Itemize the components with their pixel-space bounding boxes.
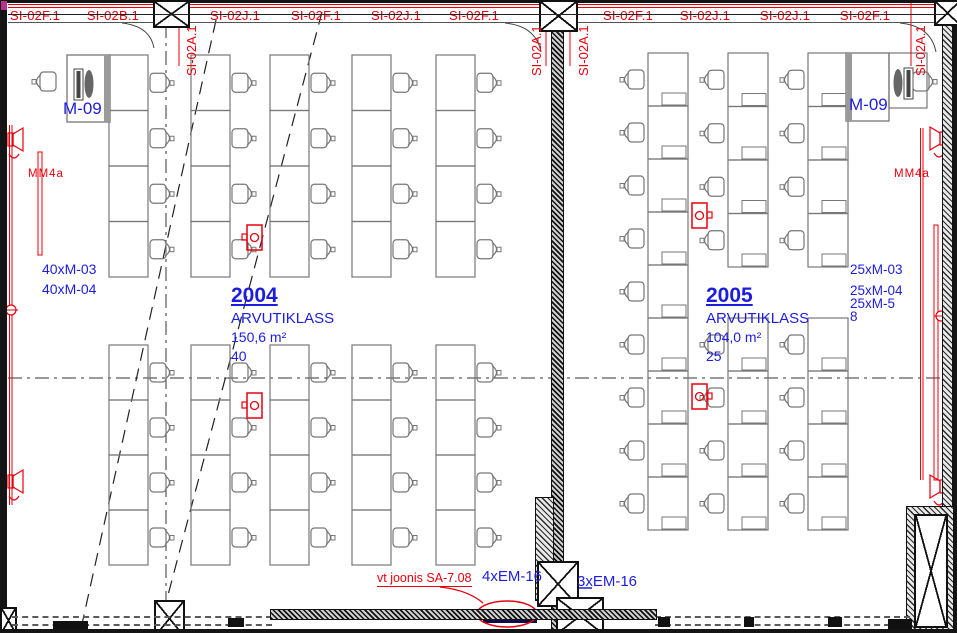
desk-computer (662, 464, 686, 476)
top-wall-line (8, 14, 948, 15)
wall-tag-vertical: SI-02A.1 (184, 25, 199, 76)
desk-computer (822, 201, 846, 213)
chair-icon (628, 494, 644, 513)
desk (109, 510, 148, 565)
desk-computer (822, 464, 846, 476)
chair-stub (497, 426, 501, 431)
chair-stub (620, 396, 624, 401)
equipment-list-2005: 25xM-0325xM-0425xM-58 (850, 263, 903, 323)
desk-computer (822, 147, 846, 159)
desk (648, 106, 688, 159)
chair-stub (331, 136, 335, 141)
desk (808, 318, 848, 371)
desk-computer (662, 146, 686, 158)
bottom-glazing-dash-right-2 (655, 624, 910, 626)
desk (648, 212, 688, 265)
desk (436, 166, 475, 222)
equipment-item: 25xM-5 (850, 297, 903, 310)
chair-stub (780, 78, 784, 83)
desk (808, 214, 848, 268)
chair-stub (780, 502, 784, 507)
chair-icon (628, 70, 644, 89)
speaker-icon (13, 128, 23, 151)
chair-stub (331, 536, 335, 541)
chair-stub (497, 536, 501, 541)
chair-icon (708, 177, 724, 196)
outlet-box (247, 393, 262, 418)
red-note-leader (440, 587, 483, 603)
door-swing-arc (122, 23, 154, 48)
chair-icon (232, 528, 248, 547)
chair-icon (311, 473, 327, 492)
chair-icon (232, 73, 248, 92)
equipment-item: 40xM-03 (42, 259, 96, 279)
chair-icon (40, 72, 56, 91)
room-number: 2004 (231, 284, 334, 308)
chair-stub (32, 80, 36, 85)
wall-tag: SI-02J.1 (364, 8, 428, 23)
desk (109, 400, 148, 455)
chair-stub (170, 481, 174, 486)
chair-stub (497, 192, 501, 197)
equipment-list-2004: 40xM-0340xM-04 (42, 259, 96, 299)
chair-icon (477, 418, 493, 437)
desk (270, 111, 309, 167)
chair-icon (393, 418, 409, 437)
desk-computer (742, 254, 766, 266)
chair-icon (708, 494, 724, 513)
desk (436, 510, 475, 565)
chair-icon (311, 528, 327, 547)
chair-stub (331, 192, 335, 197)
monitor-icon (907, 70, 911, 97)
mullion (658, 617, 670, 627)
speaker-icon (9, 154, 19, 158)
desk (648, 53, 688, 106)
wall-tag-vertical: SI-02A.1 (576, 25, 591, 76)
chair-stub (700, 502, 704, 507)
speaker-icon (13, 470, 23, 493)
chair-icon (708, 441, 724, 460)
chair-stub (780, 238, 784, 243)
room-2004-block: 2004 ARVUTIKLASS 150,6 m² 40 (231, 284, 334, 364)
desk-computer (742, 201, 766, 213)
chair-stub (331, 371, 335, 376)
chair-icon (788, 388, 804, 407)
chair-stub (497, 371, 501, 376)
desk (808, 107, 848, 161)
chair-icon (477, 129, 493, 148)
chair-icon (628, 229, 644, 248)
chair-icon (788, 177, 804, 196)
wall-tag: SI-02J.1 (673, 8, 737, 23)
outlet-circle (251, 234, 259, 242)
wall-label-mm4a-right: MM4a (894, 168, 930, 180)
desk (109, 166, 148, 222)
desk (436, 455, 475, 510)
chair-stub (497, 247, 501, 252)
desk (352, 400, 391, 455)
chair-stub (620, 131, 624, 136)
equipment-item: 8 (850, 310, 903, 323)
desk (109, 55, 148, 111)
desk-computer (822, 358, 846, 370)
desk-computer (662, 517, 686, 529)
equipment-item: 40xM-04 (42, 279, 96, 299)
desk (808, 477, 848, 530)
speaker-icon (9, 496, 19, 500)
desk (728, 371, 768, 424)
desk (728, 107, 768, 161)
wall-tag: SI-02J.1 (753, 8, 817, 23)
desk (728, 214, 768, 268)
chair-stub (700, 78, 704, 83)
room-area: 104,0 m² (706, 329, 809, 345)
room-2005-block: 2005 ARVUTIKLASS 104,0 m² 25 (706, 284, 809, 364)
chair-icon (150, 528, 166, 547)
wall-tag: SI-02B.1 (81, 8, 145, 23)
desk (808, 371, 848, 424)
desk (648, 477, 688, 530)
desk (270, 166, 309, 222)
outlet-circle (251, 402, 259, 410)
chair-icon (788, 124, 804, 143)
room-seats: 25 (706, 348, 809, 364)
chair-stub (331, 426, 335, 431)
desk-computer (742, 464, 766, 476)
chair-stub (331, 481, 335, 486)
chair-icon (311, 129, 327, 148)
chair-icon (311, 184, 327, 203)
desk-computer (662, 93, 686, 105)
chair-stub (331, 81, 335, 86)
chair-stub (413, 536, 417, 541)
chair-stub (780, 185, 784, 190)
desk (436, 400, 475, 455)
chair-stub (933, 80, 937, 85)
blue-note-4xem16: 4xEM-16 (482, 568, 542, 585)
bottom-wall (0, 629, 957, 633)
chair-stub (620, 290, 624, 295)
speaker-icon (930, 127, 940, 150)
desk (191, 400, 230, 455)
chair-stub (497, 136, 501, 141)
desk-computer (742, 517, 766, 529)
desk (728, 424, 768, 477)
equipment-item: 25xM-03 (850, 263, 903, 276)
chair-stub (413, 481, 417, 486)
desk (648, 318, 688, 371)
chair-icon (150, 473, 166, 492)
chair-icon (628, 388, 644, 407)
desk (191, 455, 230, 510)
top-red-line-1 (8, 4, 948, 5)
desk (728, 477, 768, 530)
desk (352, 166, 391, 222)
chair-icon (150, 418, 166, 437)
desk (808, 424, 848, 477)
outlet-circle (696, 212, 704, 220)
chair-icon (708, 70, 724, 89)
desk (728, 53, 768, 107)
chair-stub (170, 81, 174, 86)
teacher-desk-edge (104, 55, 110, 122)
plan-geometry (0, 0, 957, 633)
chair-stub (170, 426, 174, 431)
chair-stub (620, 343, 624, 348)
desk-computer (662, 305, 686, 317)
chair-stub (413, 81, 417, 86)
chair-icon (477, 184, 493, 203)
chair-icon (311, 363, 327, 382)
chair-icon (311, 73, 327, 92)
chair-stub (413, 426, 417, 431)
monitor-icon (85, 70, 94, 98)
desk (191, 222, 230, 278)
room-area: 150,6 m² (231, 329, 334, 345)
chair-stub (780, 131, 784, 136)
desk-computer (822, 94, 846, 106)
chair-icon (628, 123, 644, 142)
chair-stub (413, 247, 417, 252)
desk-computer (742, 147, 766, 159)
desk (270, 510, 309, 565)
chair-icon (393, 184, 409, 203)
chair-icon (628, 441, 644, 460)
chair-stub (700, 185, 704, 190)
wall-tag: SI-02F.1 (442, 8, 506, 23)
wall-tag: SI-02J.1 (203, 8, 267, 23)
desk (270, 455, 309, 510)
chair-icon (232, 240, 248, 259)
chair-icon (232, 184, 248, 203)
desk-computer (822, 254, 846, 266)
chair-icon (393, 363, 409, 382)
chair-stub (780, 449, 784, 454)
chair-stub (413, 192, 417, 197)
desk (270, 222, 309, 278)
mullion (744, 617, 754, 627)
desk (191, 111, 230, 167)
chair-icon (232, 129, 248, 148)
chair-stub (497, 81, 501, 86)
desk (191, 510, 230, 565)
blue-note-3xem16: 3xEM-16 (577, 573, 637, 590)
chair-icon (708, 231, 724, 250)
mullion (828, 617, 842, 627)
chair-icon (232, 363, 248, 382)
desk (191, 166, 230, 222)
red-note: vt joonis SA-7.08 (377, 571, 472, 587)
chair-icon (477, 363, 493, 382)
chair-stub (413, 136, 417, 141)
chair-stub (252, 136, 256, 141)
chair-stub (620, 78, 624, 83)
chair-icon (393, 473, 409, 492)
teacher-station-label-2004: M-09 (63, 99, 102, 119)
mullion (53, 621, 88, 630)
chair-stub (170, 247, 174, 252)
chair-stub (252, 481, 256, 486)
wall-tag: SI-02F.1 (833, 8, 897, 23)
chair-icon (311, 240, 327, 259)
desk (648, 159, 688, 212)
desk (808, 53, 848, 107)
chair-stub (331, 247, 335, 252)
chair-stub (620, 502, 624, 507)
desk-computer (662, 411, 686, 423)
chair-icon (150, 363, 166, 382)
chair-icon (788, 231, 804, 250)
teacher-station-label-2005: M-09 (849, 95, 888, 115)
desk (352, 455, 391, 510)
chair-stub (700, 449, 704, 454)
chair-stub (252, 426, 256, 431)
chair-icon (393, 528, 409, 547)
outlet-box (692, 203, 707, 228)
chair-stub (700, 343, 704, 348)
desk-computer (742, 411, 766, 423)
wall-tag-vertical: SI-02A.1 (913, 25, 928, 76)
left-wall (0, 0, 7, 633)
chair-icon (788, 441, 804, 460)
desk (436, 345, 475, 400)
chair-stub (620, 449, 624, 454)
desk (436, 222, 475, 278)
chair-icon (150, 184, 166, 203)
bottom-sill-hatch (270, 609, 657, 620)
desk (352, 55, 391, 111)
desk-computer (742, 94, 766, 106)
desk (436, 55, 475, 111)
desk (191, 345, 230, 400)
desk (352, 345, 391, 400)
wall-tag-vertical: SI-02A.1 (529, 25, 544, 76)
conduit-right-branch (934, 225, 938, 480)
chair-stub (700, 238, 704, 243)
floor-plan: SI-02F.1SI-02B.1SI-02J.1SI-02F.1SI-02J.1… (0, 0, 957, 633)
chair-stub (252, 81, 256, 86)
desk (808, 160, 848, 214)
desk-computer (662, 199, 686, 211)
chair-icon (393, 129, 409, 148)
room-type: ARVUTIKLASS (231, 310, 334, 327)
wall-tag: SI-02F.1 (596, 8, 660, 23)
chair-icon (150, 129, 166, 148)
desk (648, 371, 688, 424)
desk (109, 111, 148, 167)
chair-stub (170, 536, 174, 541)
chair-stub (252, 192, 256, 197)
bottom-glazing-dash-right-1 (655, 616, 910, 618)
chair-icon (232, 418, 248, 437)
chair-icon (788, 494, 804, 513)
room-number: 2005 (706, 284, 809, 308)
chair-stub (170, 136, 174, 141)
desk-computer (822, 411, 846, 423)
chair-icon (477, 473, 493, 492)
desk-computer (662, 358, 686, 370)
desk (352, 222, 391, 278)
chair-stub (780, 396, 784, 401)
chair-stub (620, 237, 624, 242)
wall-tag: SI-02F.1 (284, 8, 348, 23)
chair-icon (232, 473, 248, 492)
chair-icon (628, 176, 644, 195)
shaft (914, 514, 948, 628)
desk (352, 111, 391, 167)
chair-icon (393, 73, 409, 92)
chair-stub (252, 536, 256, 541)
chair-stub (170, 371, 174, 376)
desk (648, 424, 688, 477)
chair-stub (252, 371, 256, 376)
chair-stub (700, 131, 704, 136)
desk (352, 510, 391, 565)
desk (270, 400, 309, 455)
column-top-right (934, 0, 957, 26)
chair-icon (150, 73, 166, 92)
desk (109, 222, 148, 278)
chair-icon (477, 73, 493, 92)
desk (109, 455, 148, 510)
top-wall (0, 0, 957, 3)
chair-icon (628, 282, 644, 301)
chair-icon (477, 240, 493, 259)
monitor-icon (77, 71, 81, 98)
chair-icon (628, 335, 644, 354)
mullion (888, 619, 912, 630)
chair-icon (393, 240, 409, 259)
chair-icon (708, 388, 724, 407)
chair-icon (788, 70, 804, 89)
desk (728, 160, 768, 214)
monitor-icon (894, 69, 903, 97)
desk (436, 111, 475, 167)
room-seats: 40 (231, 348, 334, 364)
wall-label-mm4a-left: MM4a (28, 168, 64, 180)
wall-tag: SI-02F.1 (3, 8, 67, 23)
chair-stub (497, 481, 501, 486)
chair-icon (477, 528, 493, 547)
room-type: ARVUTIKLASS (706, 310, 809, 327)
chair-stub (620, 184, 624, 189)
desk-computer (822, 517, 846, 529)
chair-stub (170, 192, 174, 197)
desk-computer (662, 252, 686, 264)
column-top-center (539, 0, 578, 32)
chair-icon (708, 124, 724, 143)
desk (648, 265, 688, 318)
mullion (228, 618, 244, 627)
chair-icon (311, 418, 327, 437)
chair-stub (413, 371, 417, 376)
